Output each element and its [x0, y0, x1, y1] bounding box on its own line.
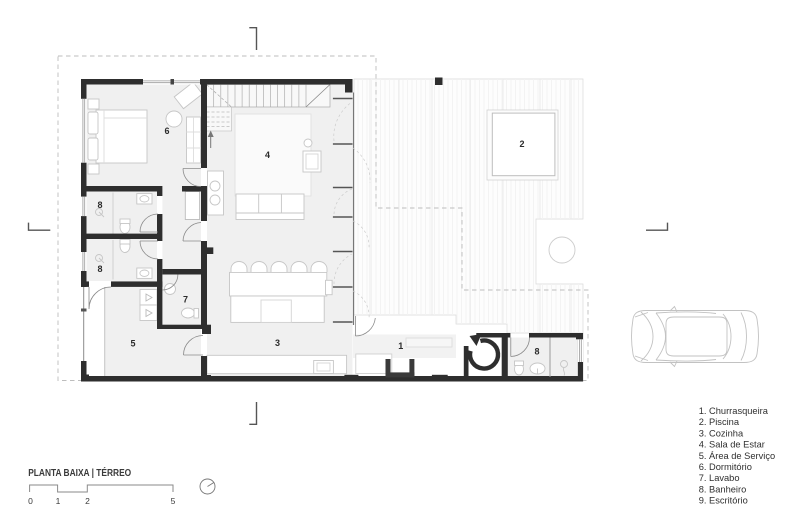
svg-text:2. Piscina: 2. Piscina	[699, 417, 740, 427]
svg-text:5: 5	[130, 339, 135, 349]
svg-text:3: 3	[275, 338, 280, 348]
svg-text:3. Cozinha: 3. Cozinha	[699, 428, 744, 438]
svg-text:PLANTA BAIXA | TÉRREO: PLANTA BAIXA | TÉRREO	[28, 466, 131, 479]
svg-text:7: 7	[183, 295, 188, 305]
svg-text:8: 8	[97, 200, 102, 210]
svg-text:1: 1	[56, 496, 61, 506]
svg-text:0: 0	[28, 496, 33, 506]
svg-text:5. Área de Serviço: 5. Área de Serviço	[699, 451, 775, 461]
svg-text:4: 4	[265, 150, 270, 160]
svg-text:2: 2	[519, 139, 524, 149]
svg-text:9. Escritório: 9. Escritório	[699, 496, 748, 506]
svg-text:8. Banheiro: 8. Banheiro	[699, 484, 747, 494]
svg-text:1. Churrasqueira: 1. Churrasqueira	[699, 406, 769, 416]
svg-text:6. Dormitório: 6. Dormitório	[699, 462, 752, 472]
svg-text:5: 5	[171, 496, 176, 506]
svg-text:6: 6	[164, 126, 169, 136]
svg-text:1: 1	[398, 341, 403, 351]
svg-text:2: 2	[85, 496, 90, 506]
svg-text:7. Lavabo: 7. Lavabo	[699, 473, 740, 483]
svg-text:8: 8	[534, 347, 539, 357]
svg-text:4. Sala de Estar: 4. Sala de Estar	[699, 440, 765, 450]
svg-text:8: 8	[97, 264, 102, 274]
